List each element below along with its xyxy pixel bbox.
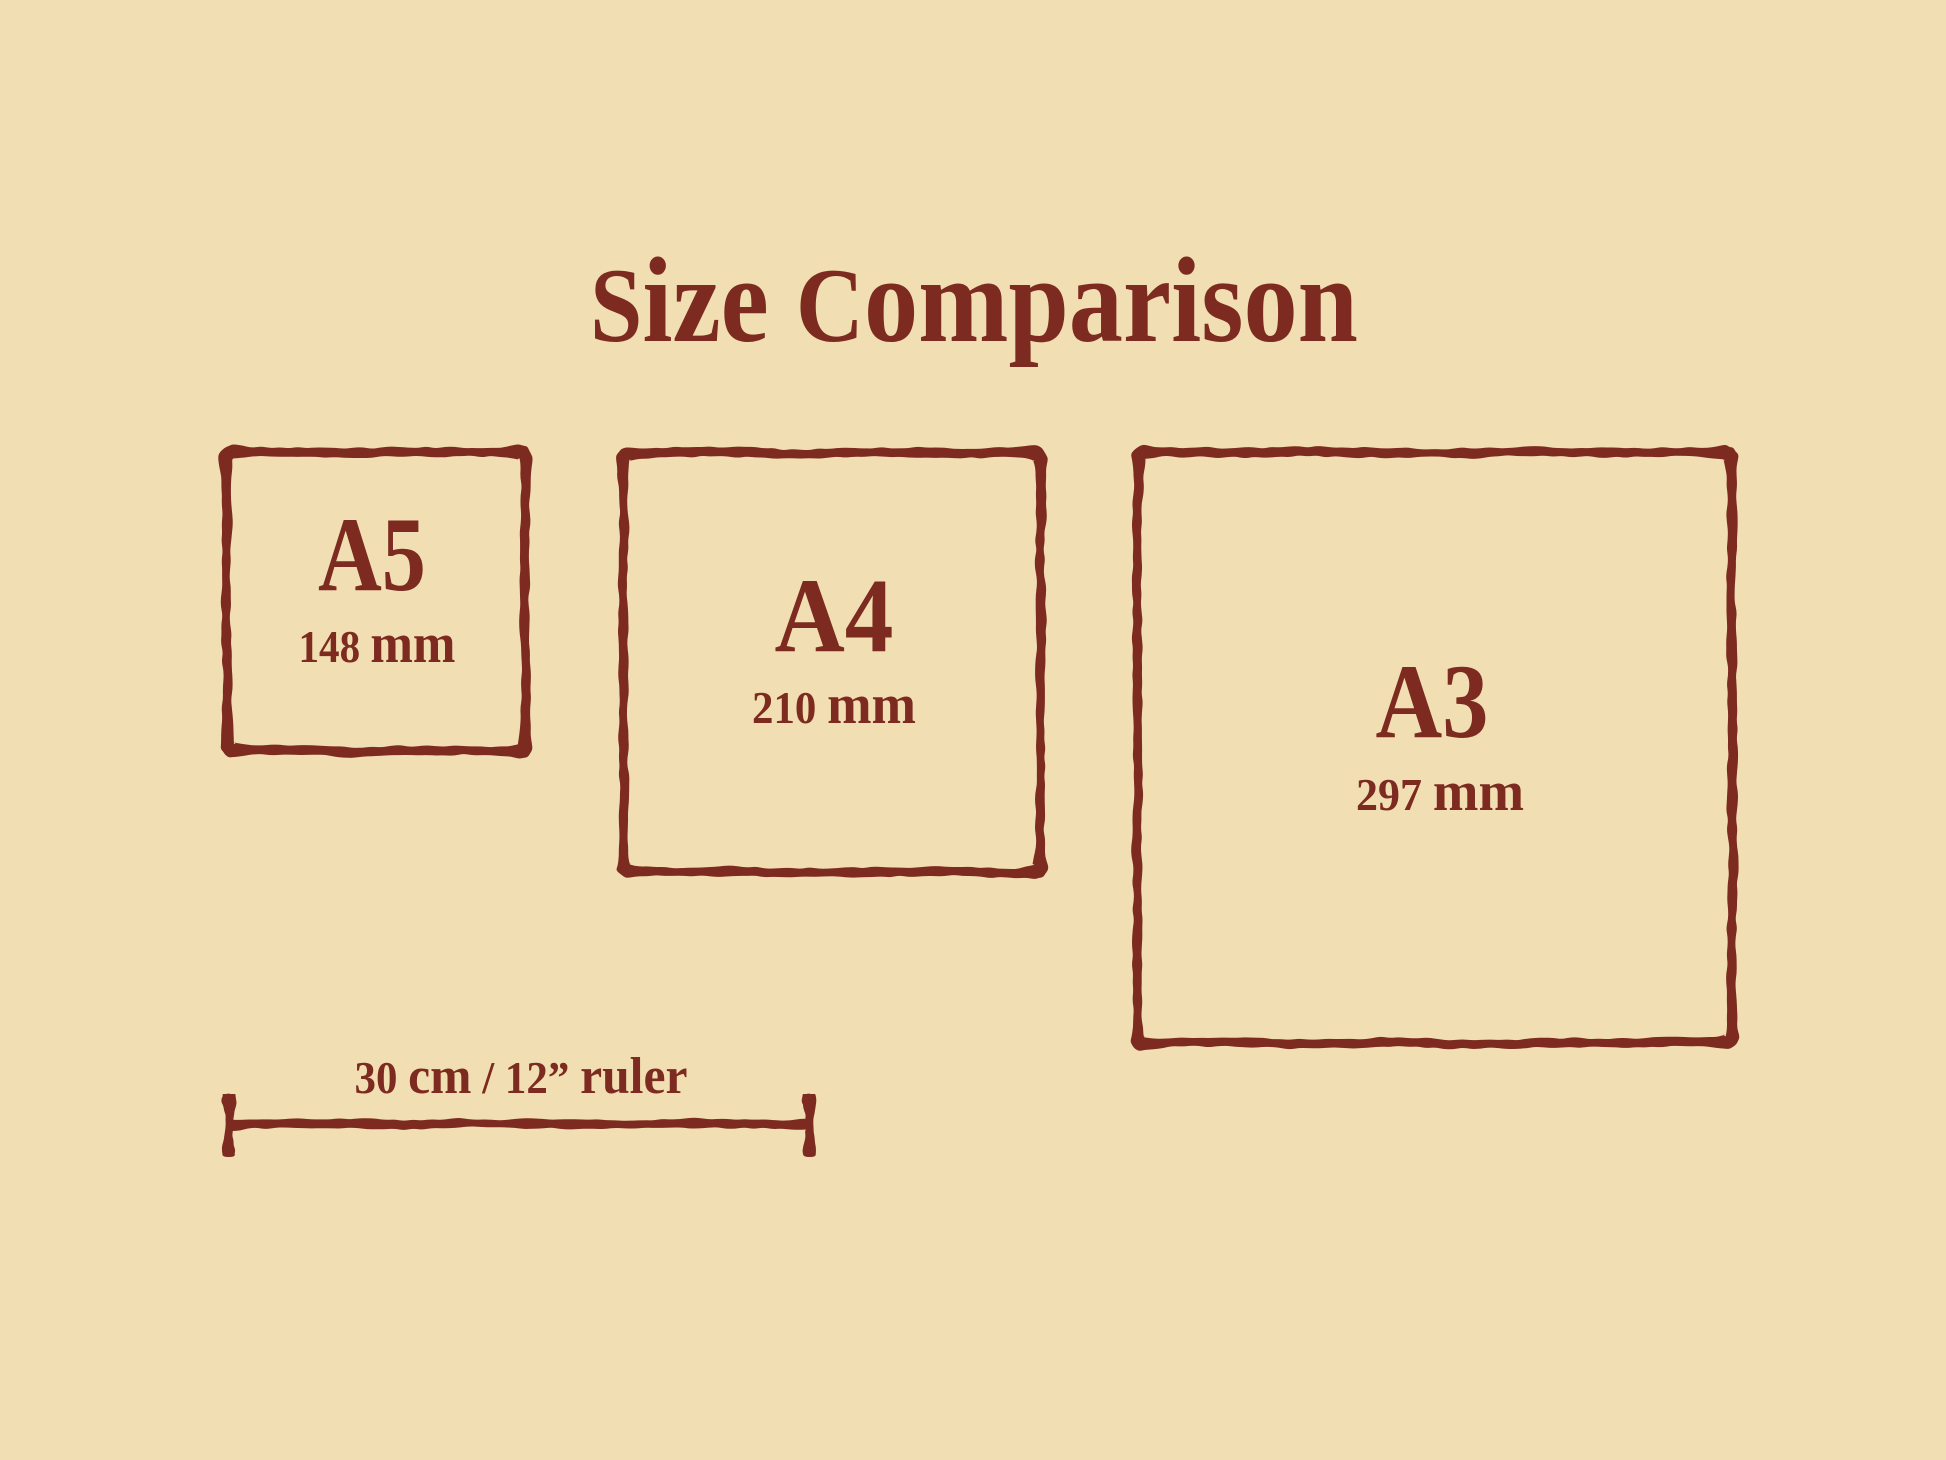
svg-text:A4: A4: [775, 557, 894, 674]
svg-text:297 mm: 297 mm: [1356, 761, 1524, 823]
svg-text:Size Comparison: Size Comparison: [590, 233, 1358, 368]
svg-text:210 mm: 210 mm: [752, 674, 916, 736]
svg-text:148 mm: 148 mm: [299, 613, 456, 675]
svg-text:A3: A3: [1376, 643, 1489, 760]
svg-text:30 cm / 12” ruler: 30 cm / 12” ruler: [355, 1048, 688, 1105]
svg-text:A5: A5: [318, 496, 426, 613]
